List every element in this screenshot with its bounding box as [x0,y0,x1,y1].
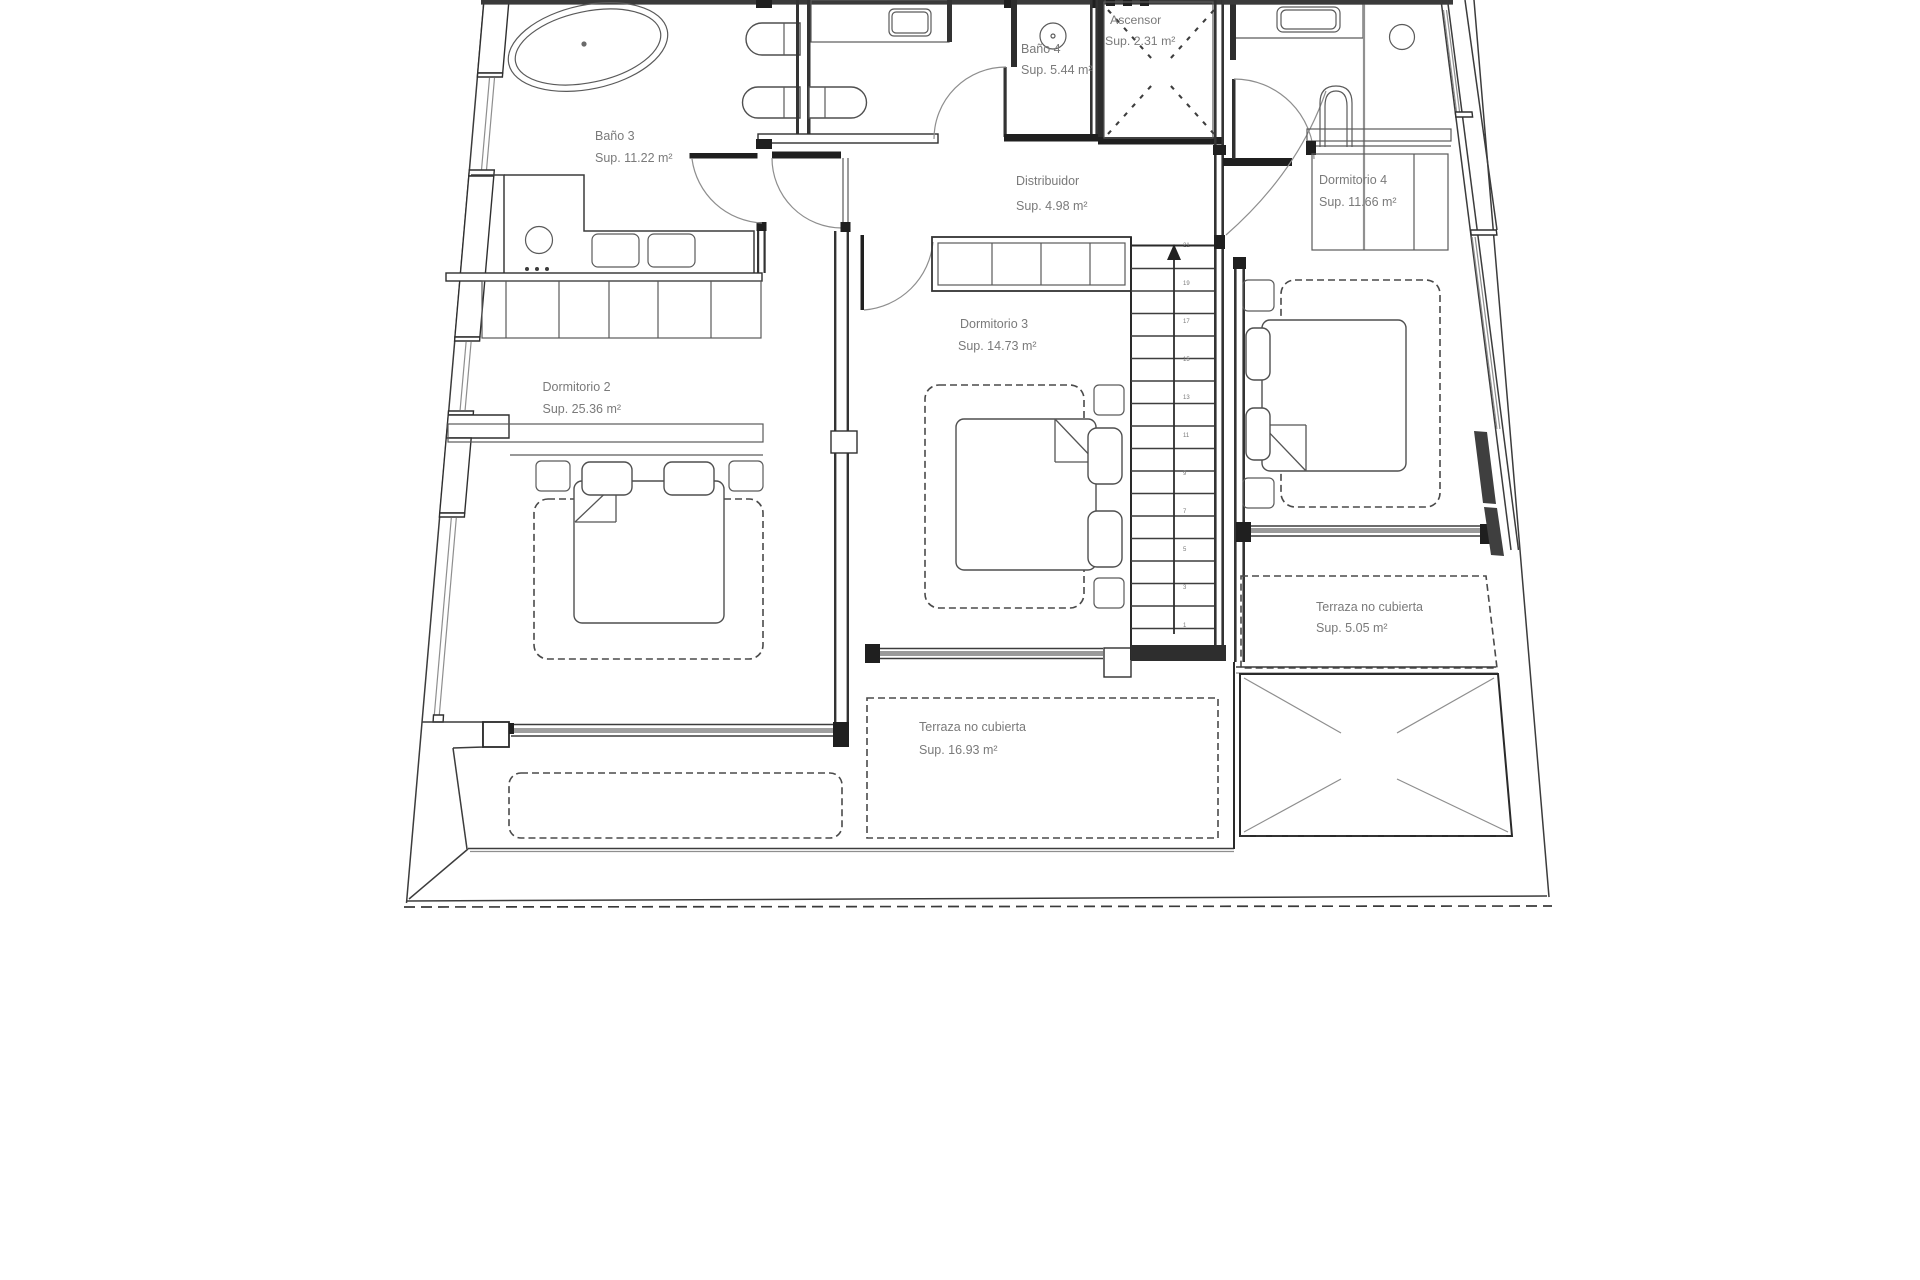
svg-text:Terraza no cubierta: Terraza no cubierta [919,720,1026,734]
svg-text:13: 13 [1183,395,1190,401]
svg-text:19: 19 [1183,281,1190,287]
svg-text:Distribuidor: Distribuidor [1016,174,1079,188]
svg-text:Sup. 11.66 m²: Sup. 11.66 m² [1319,195,1397,209]
svg-text:Sup. 5.44 m²: Sup. 5.44 m² [1021,63,1093,77]
svg-text:Ascensor: Ascensor [1110,13,1161,27]
svg-text:9: 9 [1183,471,1187,477]
svg-text:Dormitorio 2: Dormitorio 2 [543,380,611,394]
svg-text:Baño 4: Baño 4 [1021,42,1061,56]
svg-text:11: 11 [1183,433,1190,439]
svg-text:21: 21 [1183,243,1190,249]
svg-text:7: 7 [1183,509,1187,515]
svg-text:Terraza no cubierta: Terraza no cubierta [1316,600,1423,614]
svg-text:Dormitorio 4: Dormitorio 4 [1319,173,1387,187]
svg-text:Dormitorio 3: Dormitorio 3 [960,317,1028,331]
svg-text:Baño 3: Baño 3 [595,129,635,143]
svg-text:Sup. 11.22 m²: Sup. 11.22 m² [595,151,673,165]
svg-text:Sup. 14.73 m²: Sup. 14.73 m² [958,339,1037,353]
svg-text:Sup. 5.05 m²: Sup. 5.05 m² [1316,621,1388,635]
svg-text:Sup. 16.93 m²: Sup. 16.93 m² [919,743,998,757]
svg-text:17: 17 [1183,319,1190,325]
svg-text:15: 15 [1183,357,1190,363]
svg-text:3: 3 [1183,585,1187,591]
svg-text:Sup. 4.98 m²: Sup. 4.98 m² [1016,199,1088,213]
svg-text:Sup. 25.36 m²: Sup. 25.36 m² [543,402,622,416]
svg-text:Sup. 2.31 m²: Sup. 2.31 m² [1105,34,1175,48]
svg-text:5: 5 [1183,547,1187,553]
